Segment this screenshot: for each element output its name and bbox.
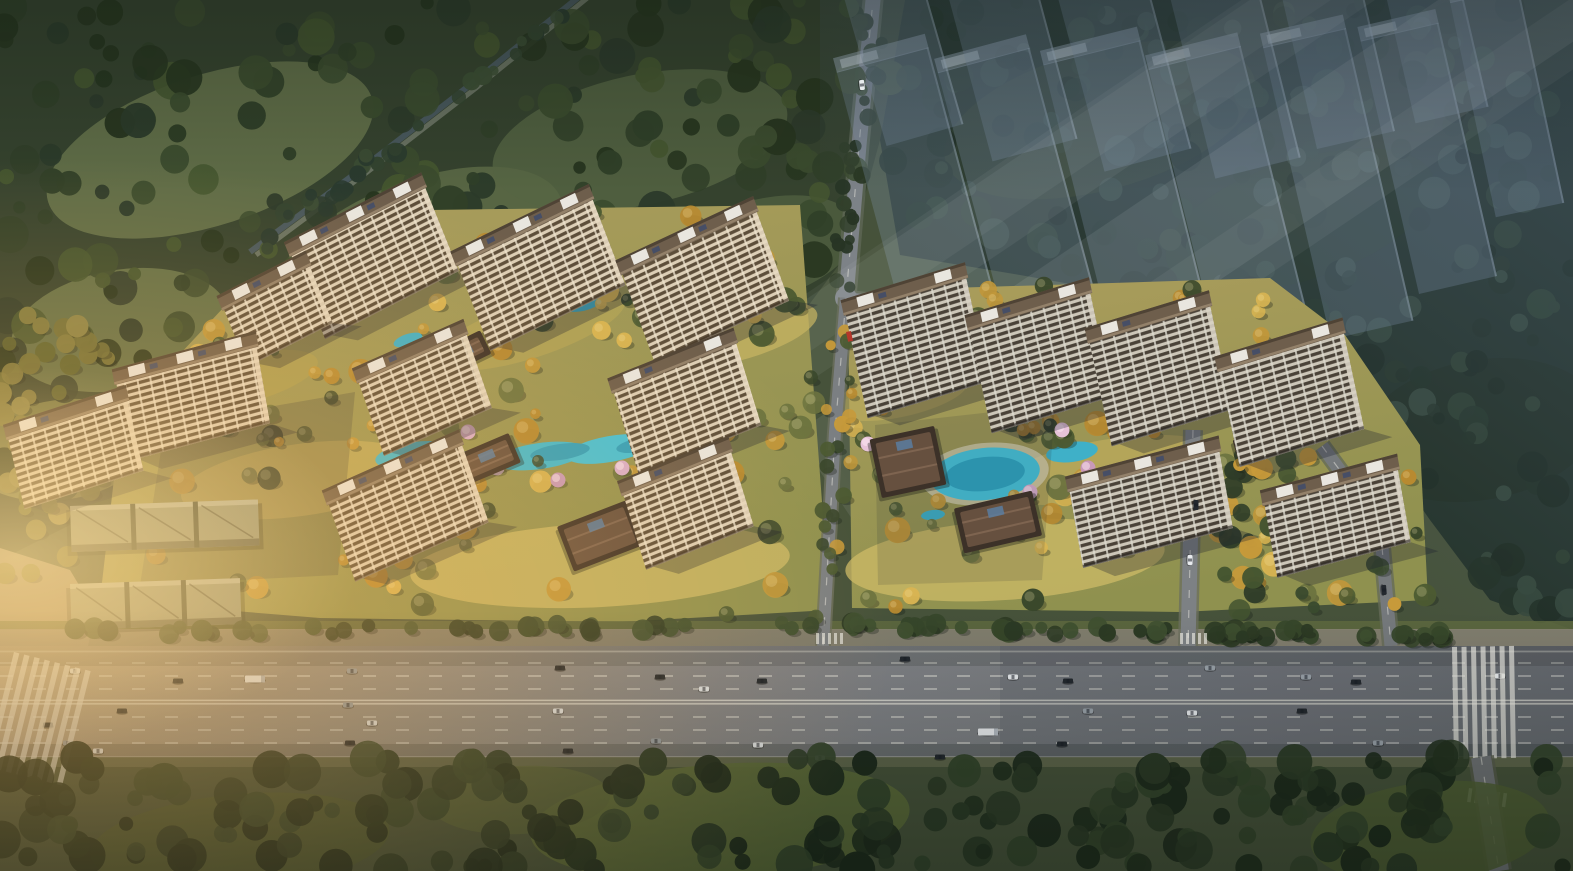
vignette-overlay xyxy=(0,0,1573,871)
aerial-rendering xyxy=(0,0,1573,871)
scene-svg xyxy=(0,0,1573,871)
